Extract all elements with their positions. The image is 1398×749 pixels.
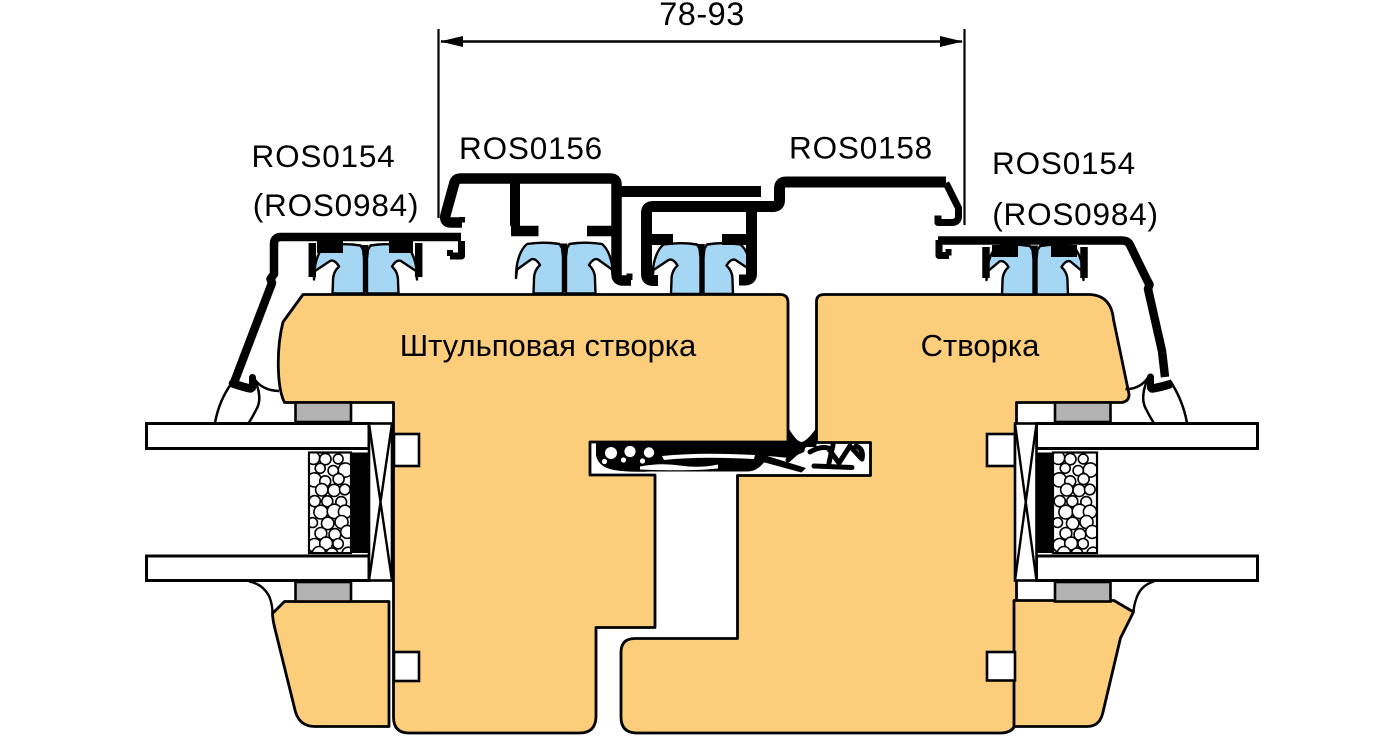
svg-text:(ROS0984): (ROS0984) xyxy=(992,196,1159,232)
svg-text:ROS0156: ROS0156 xyxy=(459,130,603,166)
svg-text:Штульповая створка: Штульповая створка xyxy=(400,328,697,363)
svg-text:Створка: Створка xyxy=(921,328,1040,363)
svg-text:ROS0154: ROS0154 xyxy=(992,145,1136,181)
svg-text:ROS0158: ROS0158 xyxy=(789,130,933,166)
svg-text:(ROS0984): (ROS0984) xyxy=(253,187,420,223)
svg-text:ROS0154: ROS0154 xyxy=(252,138,396,174)
svg-text:78-93: 78-93 xyxy=(659,0,745,32)
